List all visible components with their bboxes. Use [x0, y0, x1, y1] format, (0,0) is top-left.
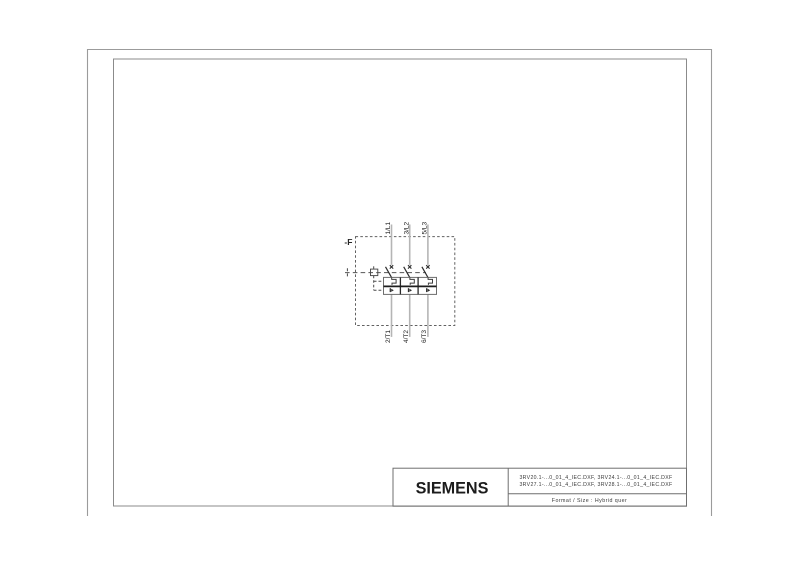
svg-text:2/T1: 2/T1	[385, 330, 392, 343]
svg-text:4/T2: 4/T2	[403, 330, 410, 343]
svg-text:3/L2: 3/L2	[403, 221, 410, 234]
svg-text:Format / Size : Hybrid quer: Format / Size : Hybrid quer	[552, 498, 627, 504]
svg-text:3RV27.1-...0_01_4_IEC.DXF, 3RV: 3RV27.1-...0_01_4_IEC.DXF, 3RV28.1-...0_…	[519, 482, 672, 488]
svg-text:3RV20.1-...0_01_4_IEC.DXF, 3RV: 3RV20.1-...0_01_4_IEC.DXF, 3RV24.1-...0_…	[519, 475, 672, 481]
svg-text:SIEMENS: SIEMENS	[416, 480, 489, 498]
svg-text:5/L3: 5/L3	[422, 221, 429, 234]
svg-text:6/T3: 6/T3	[421, 330, 428, 343]
svg-text:-F: -F	[344, 237, 352, 247]
svg-text:1/L1: 1/L1	[385, 221, 392, 234]
